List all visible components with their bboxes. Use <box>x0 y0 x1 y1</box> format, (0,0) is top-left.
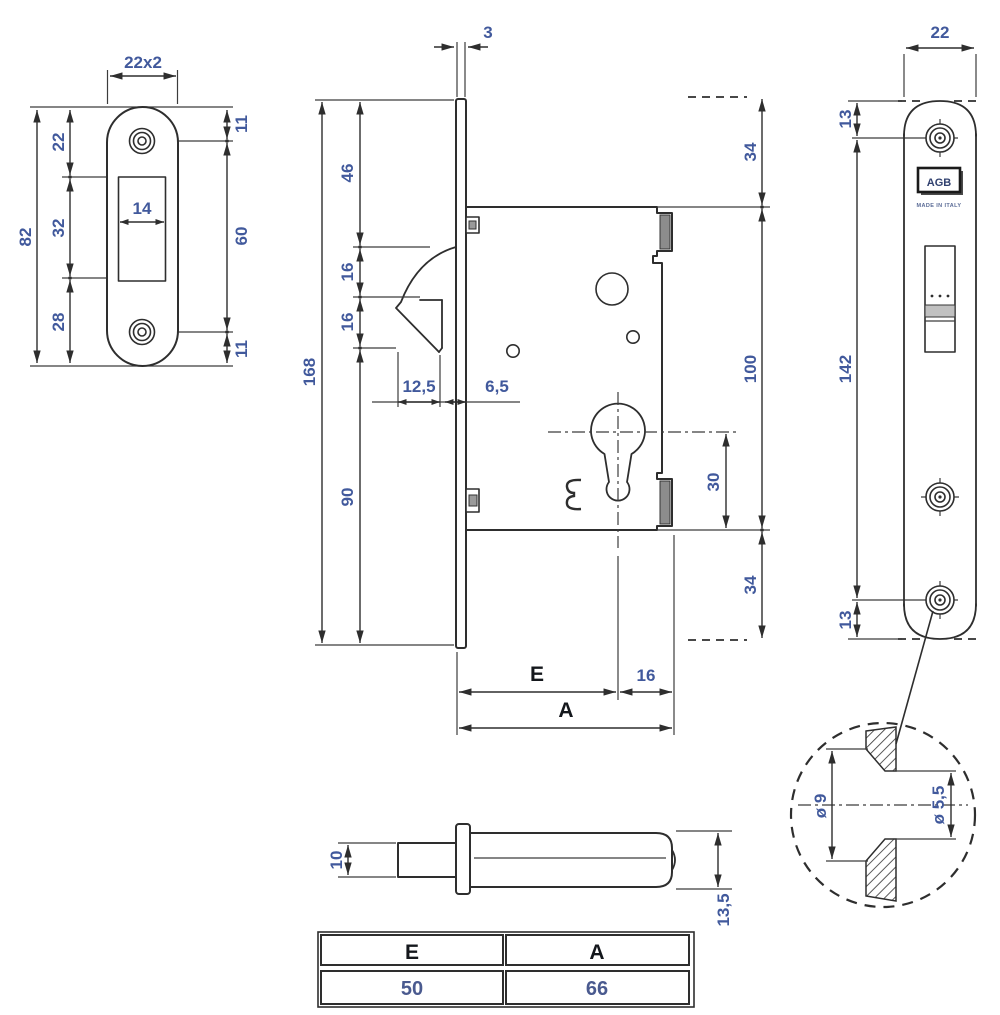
dim-body-bottom-seg: 90 <box>338 488 357 507</box>
faceplate-screw-middle <box>921 478 959 516</box>
table-header-A: A <box>589 941 604 964</box>
dim-cyl-edge: 16 <box>637 666 656 685</box>
spec-table: E A 50 66 <box>318 932 694 1007</box>
dim-strike-right-bottom: 11 <box>232 340 251 358</box>
dim-body-hook-seg1: 16 <box>338 263 357 282</box>
follower-hole <box>596 273 628 305</box>
dim-faceplate-bottom: 13 <box>836 611 855 630</box>
dim-above: 34 <box>741 142 760 161</box>
table-value-A: 66 <box>586 978 608 1000</box>
fixing-tab-top <box>660 215 670 249</box>
strike-plate-view: 22x2 82 22 32 28 14 11 60 11 <box>16 53 251 366</box>
dim-strike-right-top: 11 <box>232 115 251 133</box>
table-value-E: 50 <box>401 978 423 1000</box>
table-header-E: E <box>405 941 419 964</box>
dim-strike-width: 22x2 <box>124 53 162 72</box>
faceplate-front-view: AGB MADE IN ITALY 22 13 142 13 <box>836 23 982 744</box>
dim-bolt-height: 13,5 <box>714 893 733 926</box>
dim-countersink-outer: ø 9 <box>811 794 830 819</box>
made-in-italy-text: MADE IN ITALY <box>917 203 962 209</box>
bolt-flange <box>456 824 470 894</box>
faceplate-screw-top <box>926 119 954 157</box>
dim-total-A: A <box>558 699 573 722</box>
dim-backset-E: E <box>530 663 544 686</box>
small-hole-left <box>507 345 519 357</box>
bolt-tail <box>398 843 458 877</box>
lock-body-view: 3 168 46 16 16 90 12,5 6,5 34 100 30 34 … <box>300 23 770 735</box>
dim-faceplate-top: 13 <box>836 110 855 129</box>
dim-faceplate-width: 22 <box>931 23 950 42</box>
dim-countersink-bore: ø 5,5 <box>929 786 948 825</box>
dim-strike-bottom: 28 <box>49 313 68 332</box>
dim-case-height: 100 <box>741 355 760 383</box>
dim-below: 34 <box>741 575 760 594</box>
fixing-tab-bottom <box>660 481 670 524</box>
faceplate-side-bar <box>456 99 466 648</box>
technical-drawing-page: 22x2 82 22 32 28 14 11 60 11 <box>0 0 1000 1015</box>
bolt-body <box>470 833 672 887</box>
section-hatch-top <box>866 727 896 771</box>
agb-logo: AGB <box>918 168 963 195</box>
dim-bolt-tail: 10 <box>327 851 346 870</box>
dim-body-hook-seg2: 16 <box>338 313 357 332</box>
hook-bolt <box>396 247 456 352</box>
dim-gap: 6,5 <box>485 377 509 396</box>
faceplate-screw-bottom <box>926 581 954 619</box>
dim-strike-middle: 32 <box>49 219 68 238</box>
dim-cyl-bottom: 30 <box>704 473 723 492</box>
latch-window <box>925 246 955 352</box>
dim-body-top-seg: 46 <box>338 164 357 183</box>
hole-detail-view: ø 9 ø 5,5 <box>791 723 975 907</box>
dim-strike-top: 22 <box>49 133 68 152</box>
section-hatch-bottom <box>866 839 896 901</box>
logo-text: AGB <box>927 177 952 189</box>
strike-screw-top <box>130 129 155 154</box>
dim-plate-thickness: 3 <box>483 23 492 42</box>
dim-faceplate-span: 142 <box>836 355 855 383</box>
dim-hook-depth: 12,5 <box>402 377 435 396</box>
dim-body-overall: 168 <box>300 358 319 386</box>
dim-strike-overall: 82 <box>16 228 35 247</box>
bolt-side-view: 10 13,5 <box>327 824 733 927</box>
strike-screw-bottom <box>130 320 155 345</box>
small-hole-right <box>627 331 639 343</box>
dim-strike-span: 60 <box>232 227 251 246</box>
strike-plate-cutout <box>119 177 166 281</box>
dim-strike-cutout: 14 <box>133 199 152 218</box>
